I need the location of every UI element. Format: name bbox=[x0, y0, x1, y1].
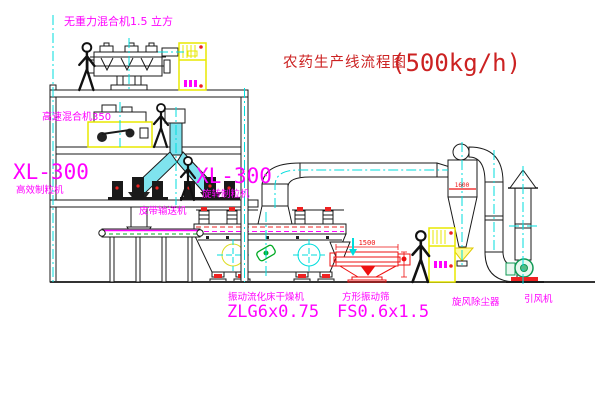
dryer-exhaust-hood bbox=[258, 206, 292, 224]
cyclone-top-outlet bbox=[453, 144, 469, 160]
indicator-light bbox=[199, 84, 203, 88]
second-floor-slab bbox=[56, 147, 241, 154]
dryer-feet bbox=[210, 272, 334, 282]
control-cabinet-ground bbox=[429, 228, 455, 282]
indicator-light bbox=[449, 264, 453, 268]
indicator-light bbox=[199, 45, 203, 49]
feed-box bbox=[165, 109, 185, 123]
dimension-text-1600: 1600 bbox=[455, 182, 470, 189]
label-high-speed-mixer: 高速混合机350 bbox=[42, 110, 111, 123]
fan-hub bbox=[521, 265, 528, 272]
drawing-title-capacity: (500kg/h) bbox=[391, 49, 521, 77]
label-belt-conveyor: 皮带输送机 bbox=[139, 205, 187, 217]
label-left-granulator-name: 高效制粒机 bbox=[16, 184, 64, 196]
label-left-granulator-model: XL-300 bbox=[13, 160, 89, 184]
label-screen-model: FS0.6x1.5 bbox=[337, 302, 429, 322]
fan-motor bbox=[506, 263, 515, 275]
label-fan: 引风机 bbox=[524, 293, 553, 305]
label-right-granulator-model: XL-300 bbox=[196, 164, 272, 188]
left-granulator bbox=[108, 177, 168, 200]
dimension-text-1500: 1500 bbox=[359, 239, 376, 247]
duct-elbow-horizontal-run bbox=[262, 163, 437, 187]
control-cabinet-top bbox=[179, 43, 206, 90]
cabinet-buttons bbox=[434, 261, 447, 268]
label-right-granulator-name: 旋转制粒机 bbox=[202, 188, 250, 200]
belt-pulley bbox=[99, 230, 105, 236]
exhaust-duct bbox=[258, 163, 450, 224]
cad-drawing-canvas: 无重力混合机1.5 立方 农药生产线流程图 (500kg/h) 高速混合机350… bbox=[0, 0, 600, 403]
drawing-title: 农药生产线流程图 bbox=[283, 54, 407, 71]
belt-conveyor bbox=[99, 229, 203, 282]
label-cyclone: 旋风除尘器 bbox=[452, 296, 500, 308]
indicator-light bbox=[449, 231, 453, 235]
dryer-deck bbox=[194, 224, 346, 234]
label-dryer-model: ZLG6x0.75 bbox=[227, 302, 319, 322]
belt-legs bbox=[110, 237, 192, 282]
belt-pulley bbox=[197, 230, 203, 236]
label-zero-gravity-mixer: 无重力混合机1.5 立方 bbox=[64, 14, 173, 28]
process-flow-diagram: 无重力混合机1.5 立方 农药生产线流程图 (500kg/h) 高速混合机350… bbox=[0, 0, 600, 403]
cabinet-buttons bbox=[184, 80, 197, 87]
screen-wedge bbox=[362, 267, 374, 275]
person-ground bbox=[413, 231, 430, 282]
induced-draft-fan bbox=[506, 259, 544, 282]
zero-gravity-mixer bbox=[88, 43, 178, 90]
